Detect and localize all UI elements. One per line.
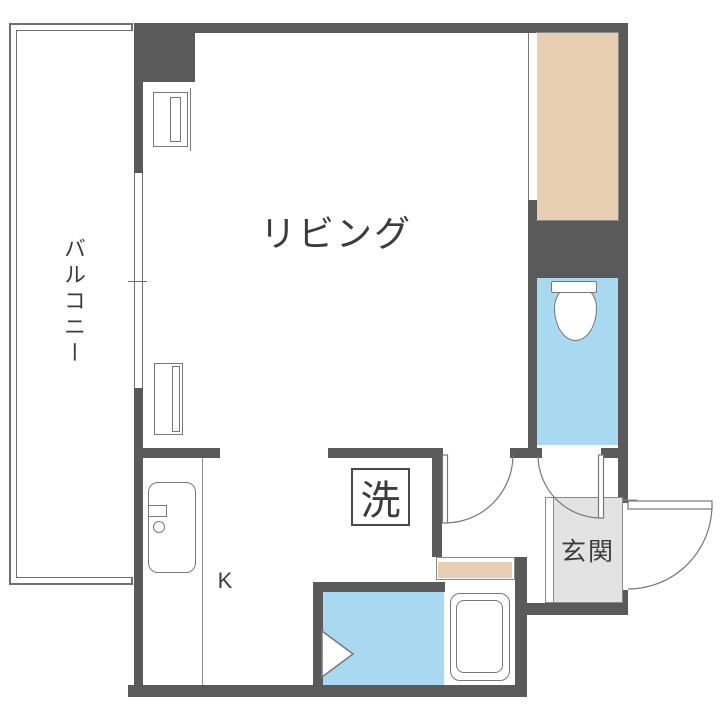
bath-room-area bbox=[323, 592, 444, 685]
closet-front-line bbox=[528, 33, 537, 200]
wall-genkan-bottom bbox=[527, 603, 628, 615]
kitchen-knob-icon bbox=[153, 521, 165, 533]
wall-closet-toilet-divider bbox=[528, 220, 628, 278]
closet-area bbox=[536, 32, 619, 221]
vanity-counter-top bbox=[438, 562, 512, 578]
wall-closet-front-stub bbox=[528, 200, 537, 220]
entrance-door-leaf bbox=[628, 501, 712, 509]
kitchen-faucet-icon bbox=[148, 505, 167, 517]
wall-bottom bbox=[128, 685, 527, 697]
stove-grill-icon bbox=[170, 97, 181, 142]
washing-machine-box: 洗 bbox=[351, 468, 410, 526]
bathtub-inner-icon bbox=[456, 600, 503, 673]
entrance-door-arc bbox=[628, 505, 712, 589]
washroom-door-arc bbox=[445, 455, 513, 523]
balcony-label: バルコニー bbox=[55, 232, 91, 372]
stove-bracket-line bbox=[190, 88, 191, 151]
genkan-label: 玄関 bbox=[561, 532, 615, 568]
wall-bath-right bbox=[515, 557, 527, 697]
wall-bath-left bbox=[313, 582, 323, 697]
washroom-door-leaf bbox=[443, 455, 448, 523]
kitchen-counter-edge bbox=[202, 458, 203, 685]
floor-plan: バルコニー リビング K 洗 玄関 bbox=[0, 0, 720, 720]
wall-kitchen-living bbox=[134, 448, 220, 458]
wall-washroom-living bbox=[328, 448, 443, 458]
wall-left-lower bbox=[134, 388, 143, 690]
toilet-tank-icon bbox=[551, 281, 597, 293]
wall-washroom-hall-divider bbox=[432, 458, 442, 557]
living-room-label: リビング bbox=[256, 208, 416, 254]
genkan-area: 玄関 bbox=[553, 498, 622, 602]
refrigerator-door-line bbox=[172, 366, 180, 432]
wall-left-upper bbox=[134, 23, 143, 173]
wall-hall-stub bbox=[510, 448, 535, 458]
wall-toilet-left bbox=[528, 278, 537, 458]
wall-corner-block bbox=[134, 23, 195, 82]
kitchen-label: K bbox=[210, 568, 240, 594]
window-center-tick bbox=[128, 281, 147, 282]
wall-toilet-door-stub-right bbox=[601, 448, 628, 458]
wall-bath-top bbox=[313, 582, 445, 592]
